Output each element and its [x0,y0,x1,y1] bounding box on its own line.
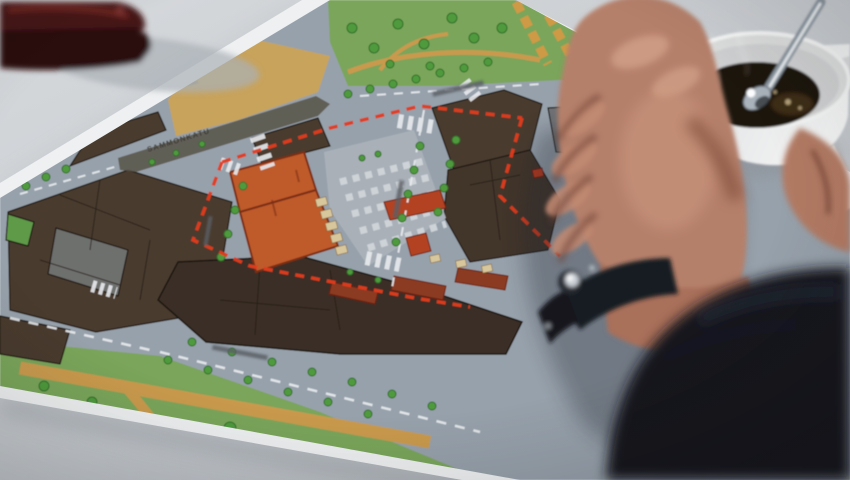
photo-canvas: SAMMONKATU [0,0,850,480]
vignette [0,0,850,480]
photo-urban-plan-review: SAMMONKATU [0,0,850,480]
